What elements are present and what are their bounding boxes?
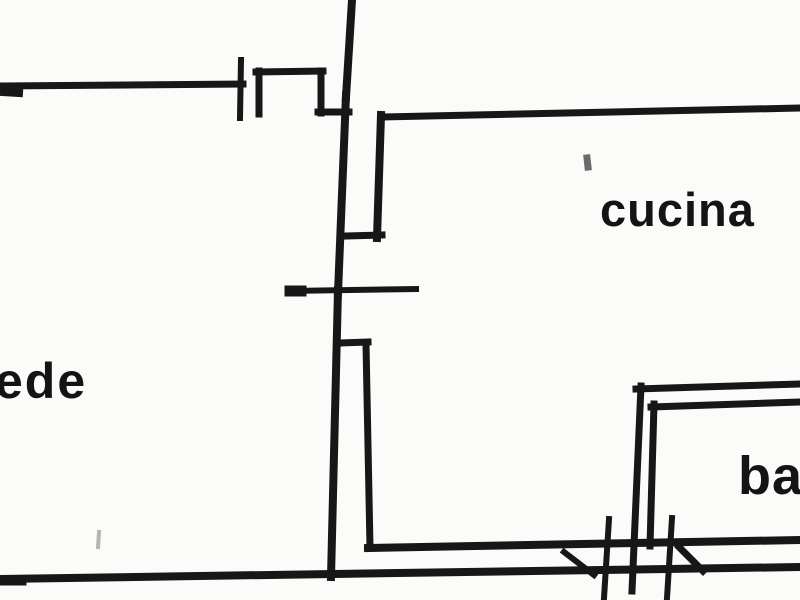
- kitchen-left-wall-vertical: [377, 115, 381, 238]
- door-jamb-tick-upper-left: [240, 60, 241, 118]
- double-wall-inner-vertical: [366, 344, 370, 547]
- room-label-bathroom-partial: ba: [738, 449, 800, 503]
- center-wall-mid-vertical: [338, 95, 346, 293]
- bathroom-inner-left-wall: [650, 404, 654, 546]
- room-label-kitchen: cucina: [600, 186, 755, 233]
- scan-speckle-bottom-left: [98, 532, 99, 547]
- bottom-wall-inner-horizontal: [368, 540, 800, 548]
- floor-plan: ede cucina ba: [0, 0, 800, 600]
- door-opening-tick-horizontal: [290, 289, 416, 291]
- top-center-wall-vertical: [346, 0, 352, 97]
- scan-speckle-near-kitchen: [587, 158, 588, 167]
- upper-left-wall-horizontal: [0, 84, 243, 86]
- bathroom-inner-top-wall: [651, 402, 800, 407]
- room-label-left-partial: ede: [0, 356, 87, 406]
- bathroom-outer-top-wall: [636, 384, 800, 389]
- bottom-wall-outer-horizontal: [0, 567, 800, 579]
- kitchen-left-wall-connector: [346, 235, 382, 236]
- upper-left-wall-end-cap: [3, 92, 19, 93]
- bathroom-outer-left-wall: [632, 386, 641, 591]
- door-jamb-tick-bottom-right: [667, 518, 672, 598]
- floorplan-svg: [0, 0, 800, 600]
- wall-notch-top: [256, 71, 323, 72]
- kitchen-top-wall: [383, 108, 800, 117]
- center-wall-lower-vertical: [331, 290, 338, 577]
- door-jamb-tick-bottom-left: [604, 519, 609, 598]
